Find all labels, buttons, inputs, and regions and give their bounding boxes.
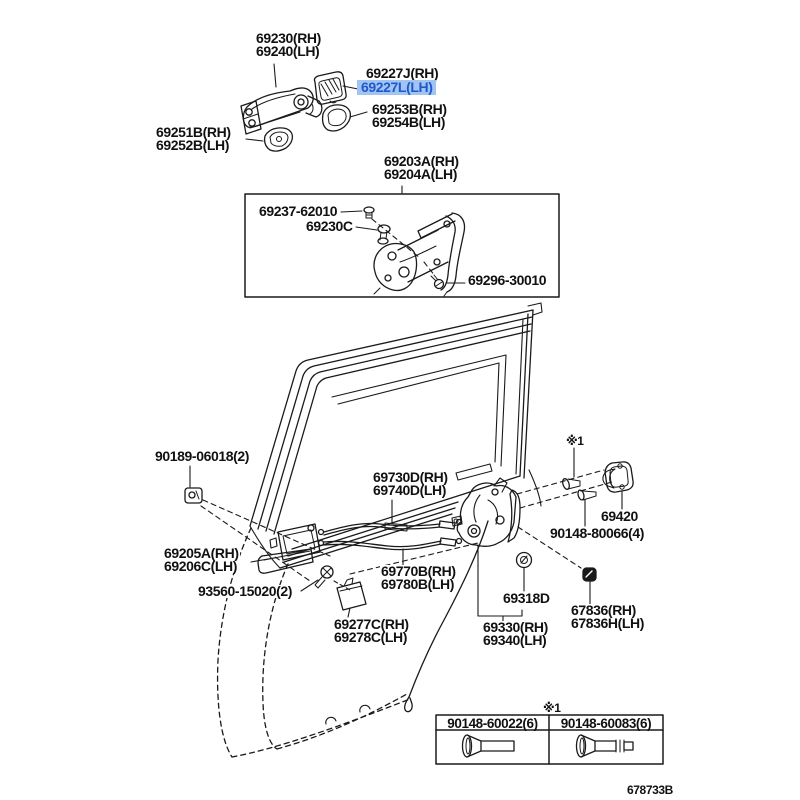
parts-diagram-page: 69230(RH) 69240(LH) 69227J(RH) 69227L(LH… — [0, 0, 800, 800]
pad-69277-glyph — [337, 578, 366, 617]
part-label-69205a-69206c[interactable]: 69205A(RH) 69206C(LH) — [163, 547, 240, 573]
handle-assembly-drawing — [241, 64, 367, 151]
part-label-90148-80066[interactable]: 90148-80066(4) — [549, 527, 645, 540]
grommet-69318-glyph — [517, 553, 532, 592]
door-drawing — [218, 303, 542, 757]
part-label-69253b-69254b[interactable]: 69253B(RH) 69254B(LH) — [371, 103, 448, 129]
part-label-69420[interactable]: 69420 — [600, 510, 639, 523]
part-label-90189-06018[interactable]: 90189-06018(2) — [154, 450, 250, 463]
clip-69230c-glyph — [378, 225, 390, 244]
table-screw-60083-glyph — [577, 735, 634, 757]
striker-screw-b-glyph — [577, 489, 596, 500]
part-label-69330-69340[interactable]: 69330(RH) 69340(LH) — [482, 621, 549, 647]
part-label-69277c-69278c[interactable]: 69277C(RH) 69278C(LH) — [333, 618, 410, 644]
part-label-69770b-69780b[interactable]: 69770B(RH) 69780B(LH) — [380, 565, 457, 591]
table-screw-60022-glyph — [463, 735, 515, 757]
screw-69237-glyph — [364, 207, 374, 218]
table-header-90148-60083[interactable]: 90148-60083(6) — [550, 717, 662, 730]
part-label-69230-69240[interactable]: 69230(RH) 69240(LH) — [255, 32, 322, 58]
part-label-93560-15020[interactable]: 93560-15020(2) — [197, 585, 293, 598]
part-label-67836-67836h[interactable]: 67836(RH) 67836H(LH) — [570, 604, 645, 630]
screw-69296-glyph — [431, 275, 444, 289]
ref-mark-table: ※1 — [542, 702, 562, 714]
part-label-69318d[interactable]: 69318D — [502, 592, 551, 605]
part-label-69230c[interactable]: 69230C — [305, 220, 354, 233]
part-label-69730d-69740d[interactable]: 69730D(RH) 69740D(LH) — [372, 471, 449, 497]
striker-screw-a-glyph — [561, 478, 580, 490]
table-header-90148-60022[interactable]: 90148-60022(6) — [437, 717, 548, 730]
part-label-69227l-highlighted[interactable]: 69227L(LH) — [357, 80, 436, 95]
part-label-69296-30010[interactable]: 69296-30010 — [467, 274, 547, 287]
diagram-code: 678733B — [626, 784, 674, 796]
part-label-69251b-69252b[interactable]: 69251B(RH) 69252B(LH) — [155, 126, 232, 152]
ref-mark-striker: ※1 — [565, 435, 585, 447]
part-label-69237-62010[interactable]: 69237-62010 — [258, 205, 338, 218]
part-label-69203a-69204a[interactable]: 69203A(RH) 69204A(LH) — [383, 155, 460, 181]
